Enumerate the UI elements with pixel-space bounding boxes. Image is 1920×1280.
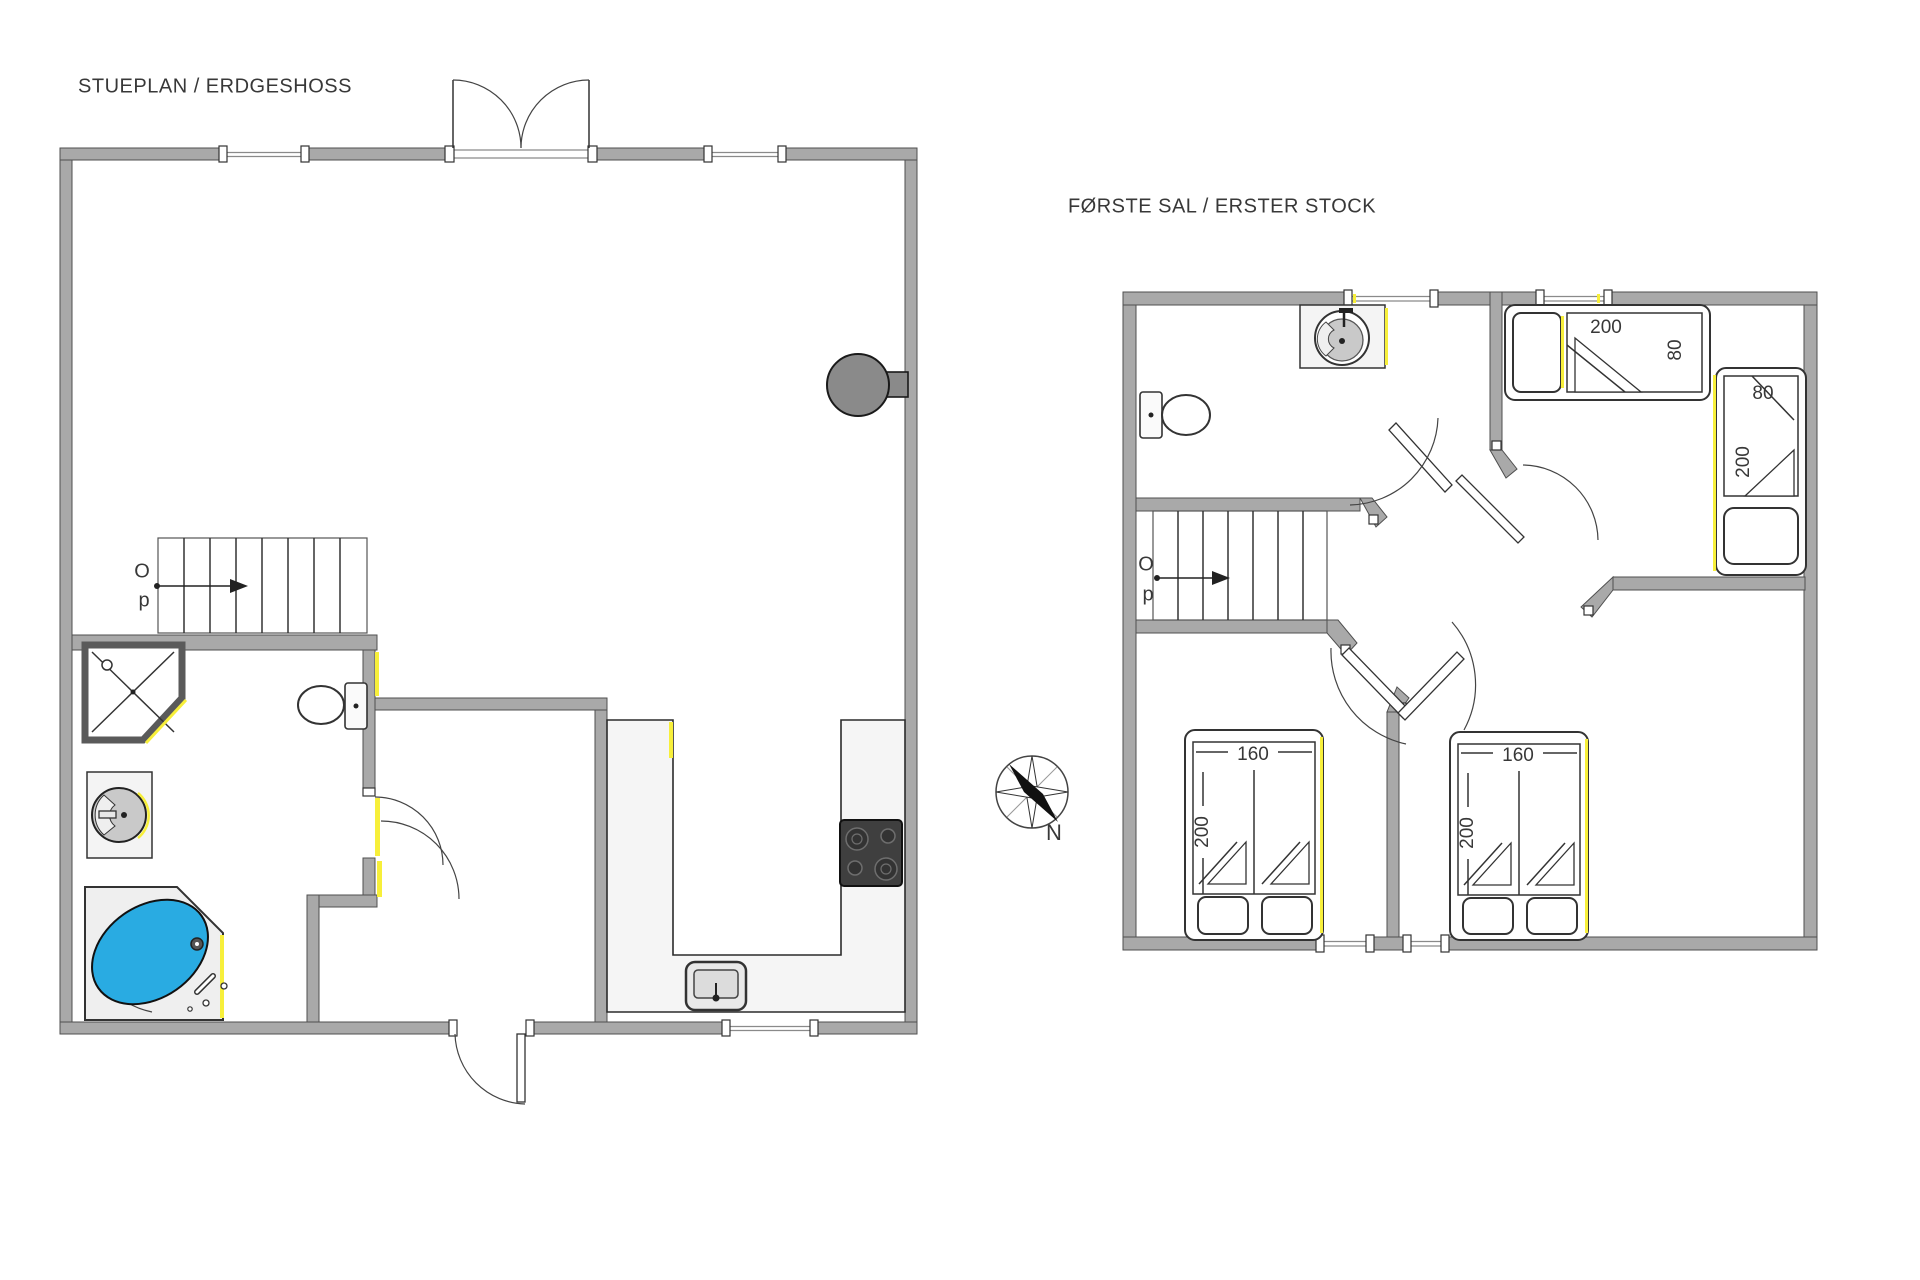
gf-window-top-left [219, 146, 309, 162]
compass-north-label: N [1046, 820, 1062, 846]
ff-bed-double-right-pillow [1527, 898, 1577, 934]
gf-window-bottom [722, 1020, 818, 1036]
gf-sink-tap-icon [713, 995, 720, 1002]
gf-bedroom-door [377, 821, 459, 899]
floorplan-page: STUEPLAN / ERDGESHOSS FØRSTE SAL / ERSTE… [0, 0, 1920, 1280]
ff-window-bedroom-left [1316, 935, 1374, 952]
ff-door-bedroom1 [1456, 465, 1598, 543]
ff-door-bathroom [1350, 418, 1452, 505]
ff-bed-double-left-pillow [1198, 897, 1248, 934]
ff-bed-single-right-pillow [1724, 508, 1798, 564]
first-floor-plan [1123, 290, 1817, 952]
gf-title: STUEPLAN / ERDGESHOSS [78, 76, 352, 99]
ff-bed-double-left-width: 160 [1237, 744, 1269, 766]
ff-bed-single-right-length: 200 [1733, 446, 1755, 478]
ff-bed-single-top-pillow [1513, 313, 1561, 392]
gf-stairs-label-o: O [134, 561, 150, 584]
ff-washbasin-tap-icon [1339, 308, 1353, 313]
gf-window-top-right [704, 146, 786, 162]
ground-floor-plan [60, 80, 917, 1104]
ff-stairs [1153, 511, 1327, 620]
floorplan-drawing [0, 0, 1920, 1280]
ff-bed-single-top-length: 200 [1590, 317, 1622, 339]
gf-door-accent [375, 652, 379, 696]
ff-toilet [1140, 392, 1210, 438]
ff-bed-single-right-width: 80 [1752, 383, 1773, 405]
gf-bathtub [72, 878, 228, 1026]
ff-stairs-label-p: p [1142, 584, 1153, 607]
gf-washbasin [87, 772, 152, 858]
gf-exterior-door [449, 1020, 534, 1104]
compass-rose [996, 756, 1068, 828]
ff-bed-double-right-pillow [1463, 898, 1513, 934]
gf-stairs [154, 538, 367, 633]
gf-shower-head-icon [102, 660, 112, 670]
ff-washbasin [1300, 305, 1388, 368]
ff-title: FØRSTE SAL / ERSTER STOCK [1068, 196, 1376, 219]
gf-washbasin-tap-icon [99, 811, 116, 818]
gf-kitchen-sink [686, 962, 746, 1010]
ff-bed-double-left-pillow [1262, 897, 1312, 934]
ff-bed-double-left-length: 200 [1192, 816, 1214, 848]
gf-french-door [445, 80, 597, 162]
gf-fireplace [827, 354, 908, 416]
ff-window-bedroom-right [1403, 935, 1449, 952]
gf-shower [85, 645, 186, 743]
ff-bed-single-top-width: 80 [1665, 339, 1687, 360]
ff-bed-double-right-width: 160 [1502, 745, 1534, 767]
ff-stairs-label-o: O [1138, 554, 1154, 577]
gf-stove [840, 820, 902, 886]
ff-door-bedroom-right [1398, 622, 1476, 730]
gf-toilet [298, 683, 367, 729]
gf-bathroom-door [375, 797, 443, 865]
gf-stairs-label-p: p [138, 590, 149, 613]
ff-bed-double-right-length: 200 [1457, 817, 1479, 849]
